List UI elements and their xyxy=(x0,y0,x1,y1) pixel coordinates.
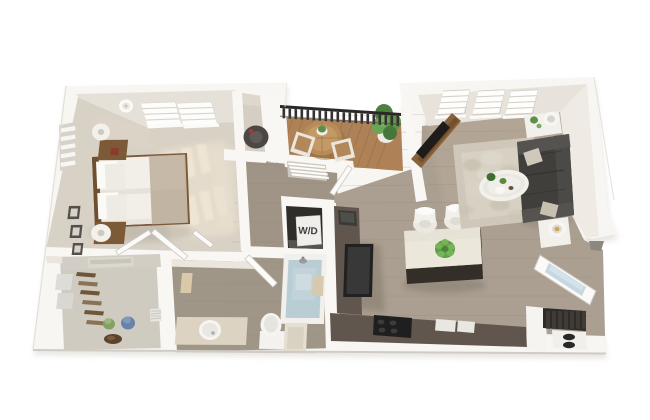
svg-text:W/D: W/D xyxy=(298,226,318,238)
